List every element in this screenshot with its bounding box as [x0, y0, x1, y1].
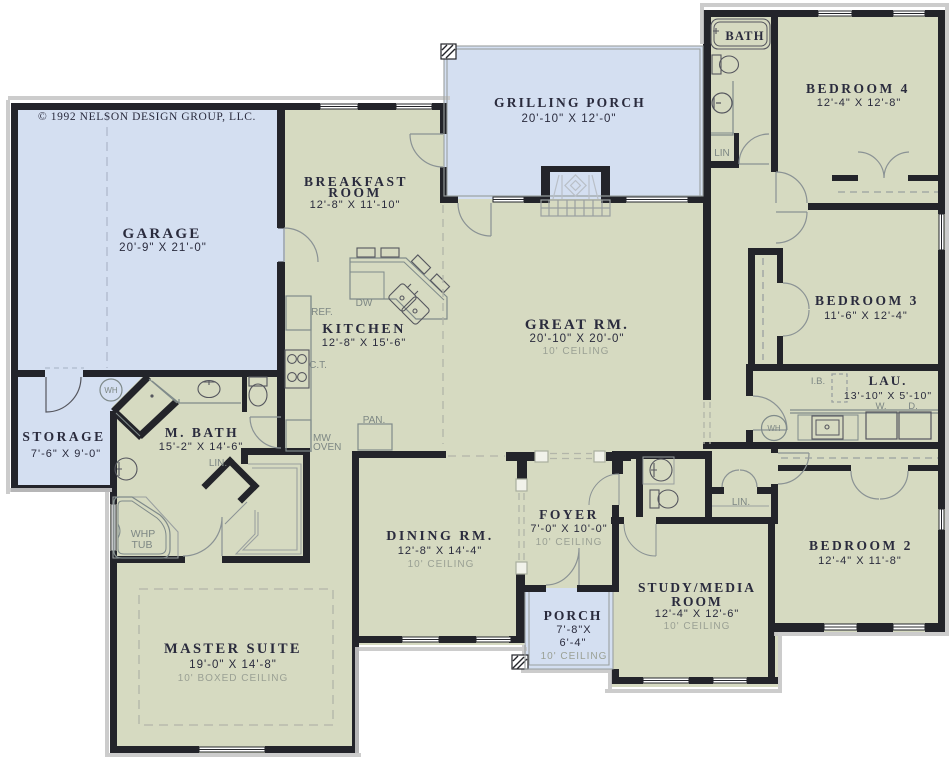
svg-text:LAU.: LAU.	[869, 373, 908, 388]
svg-text:10' CEILING: 10' CEILING	[664, 621, 731, 632]
svg-text:12'-8" X 15'-6": 12'-8" X 15'-6"	[322, 337, 407, 349]
svg-text:LIN.: LIN.	[209, 458, 227, 469]
svg-text:ROOM: ROOM	[671, 594, 723, 609]
svg-text:15'-2" X 14'-6": 15'-2" X 14'-6"	[159, 441, 244, 453]
svg-text:C.T.: C.T.	[309, 360, 327, 371]
svg-text:10' BOXED CEILING: 10' BOXED CEILING	[178, 673, 289, 684]
svg-text:10' CEILING: 10' CEILING	[543, 346, 610, 357]
svg-text:DW: DW	[356, 298, 373, 309]
svg-text:7'-6" X 9'-0": 7'-6" X 9'-0"	[31, 448, 101, 460]
svg-text:20'-10" X 20'-0": 20'-10" X 20'-0"	[529, 333, 624, 345]
svg-text:12'-4" X 11'-8": 12'-4" X 11'-8"	[818, 555, 902, 567]
svg-text:GARAGE: GARAGE	[122, 226, 201, 242]
svg-text:FOYER: FOYER	[539, 507, 599, 522]
svg-text:KITCHEN: KITCHEN	[322, 322, 406, 337]
svg-text:GRILLING PORCH: GRILLING PORCH	[494, 95, 646, 110]
svg-text:12'-4" X 12'-6": 12'-4" X 12'-6"	[655, 608, 740, 620]
svg-text:D.: D.	[908, 401, 918, 412]
svg-text:ROOM: ROOM	[328, 185, 382, 200]
svg-text:WH: WH	[104, 386, 118, 395]
svg-text:10' CEILING: 10' CEILING	[541, 651, 608, 662]
svg-text:20'-10" X 12'-0": 20'-10" X 12'-0"	[521, 113, 616, 125]
svg-text:BEDROOM 2: BEDROOM 2	[809, 538, 913, 553]
svg-text:DINING RM.: DINING RM.	[386, 529, 493, 544]
svg-text:BEDROOM 3: BEDROOM 3	[815, 293, 919, 308]
svg-text:STUDY/MEDIA: STUDY/MEDIA	[638, 580, 756, 595]
svg-text:GREAT RM.: GREAT RM.	[525, 317, 629, 333]
svg-text:11'-6" X 12'-4": 11'-6" X 12'-4"	[824, 310, 908, 322]
svg-text:PAN.: PAN.	[363, 415, 386, 426]
svg-text:12'-8" X 11'-10": 12'-8" X 11'-10"	[310, 199, 401, 211]
svg-text:10' CEILING: 10' CEILING	[408, 559, 475, 570]
svg-text:TUB: TUB	[132, 539, 153, 551]
svg-text:7'-0" X 10'-0": 7'-0" X 10'-0"	[530, 523, 607, 535]
svg-text:12'-8" X 14'-4": 12'-8" X 14'-4"	[398, 545, 483, 557]
svg-text:7'-8"X: 7'-8"X	[556, 624, 591, 636]
svg-text:© 1992 NELSON DESIGN GROUP, LL: © 1992 NELSON DESIGN GROUP, LLC.	[38, 111, 256, 123]
svg-text:10' CEILING: 10' CEILING	[536, 537, 603, 548]
svg-text:I.B.: I.B.	[811, 376, 825, 387]
svg-text:12'-4" X 12'-8": 12'-4" X 12'-8"	[817, 97, 902, 109]
svg-text:REF.: REF.	[311, 307, 333, 318]
svg-text:19'-0" X 14'-8": 19'-0" X 14'-8"	[189, 659, 277, 671]
svg-text:STORAGE: STORAGE	[22, 429, 105, 444]
svg-text:LIN: LIN	[714, 148, 730, 159]
svg-text:WH: WH	[767, 424, 781, 433]
svg-text:20'-9" X 21'-0": 20'-9" X 21'-0"	[119, 242, 207, 254]
svg-text:MASTER SUITE: MASTER SUITE	[164, 641, 302, 657]
svg-text:LIN.: LIN.	[732, 497, 750, 508]
svg-text:13'-10" X 5'-10": 13'-10" X 5'-10"	[844, 390, 932, 402]
svg-text:BEDROOM 4: BEDROOM 4	[806, 81, 910, 96]
svg-text:6'-4": 6'-4"	[560, 637, 587, 649]
svg-text:OVEN: OVEN	[313, 442, 341, 453]
svg-text:PORCH: PORCH	[544, 608, 603, 623]
svg-text:BATH: BATH	[725, 29, 764, 43]
svg-text:W.: W.	[875, 401, 886, 412]
svg-text:M. BATH: M. BATH	[165, 425, 239, 440]
